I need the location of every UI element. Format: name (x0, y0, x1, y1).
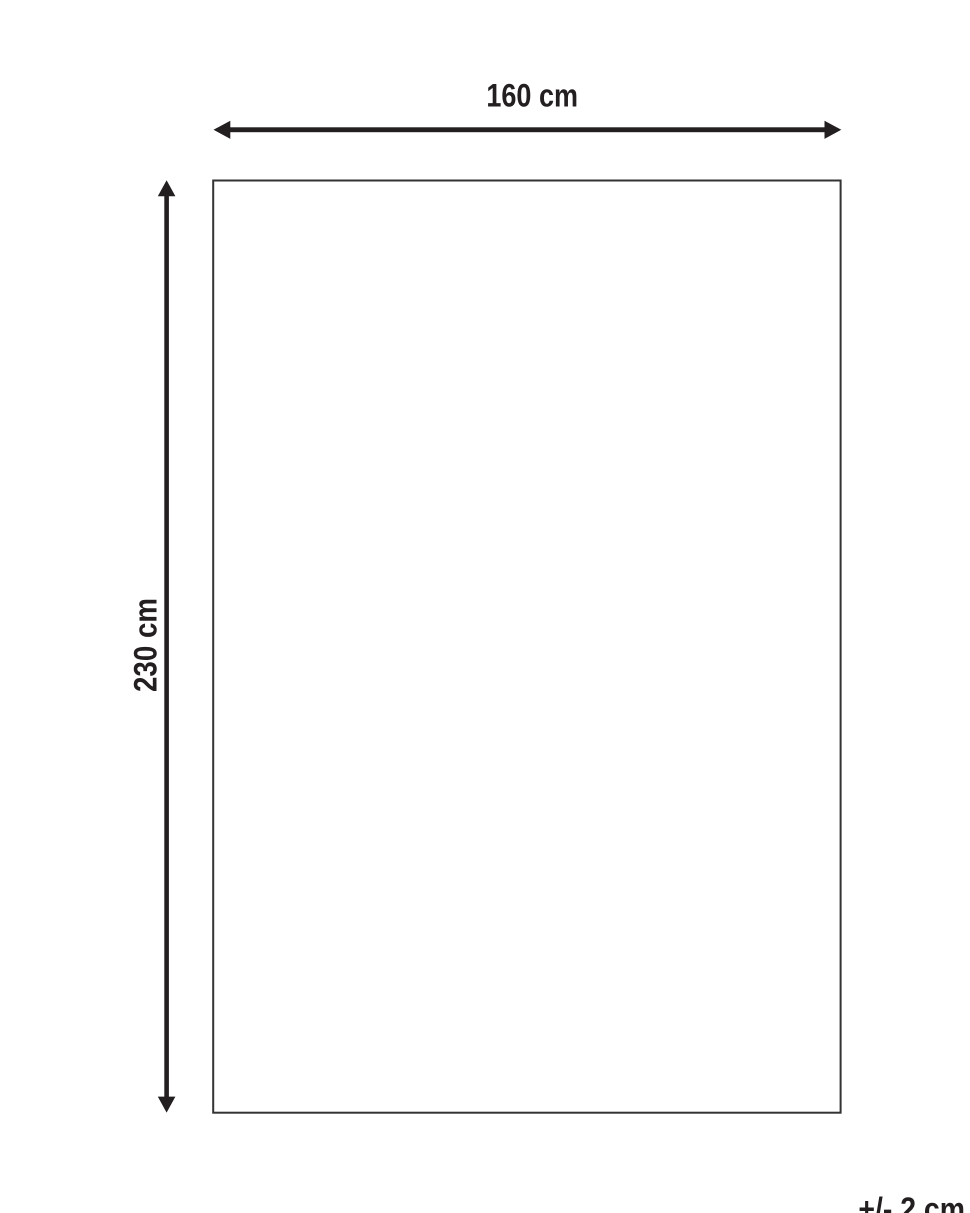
svg-text:160 cm: 160 cm (486, 78, 578, 114)
svg-text:230 cm: 230 cm (128, 598, 164, 692)
svg-text:+/- 2 cm: +/- 2 cm (858, 1191, 965, 1213)
